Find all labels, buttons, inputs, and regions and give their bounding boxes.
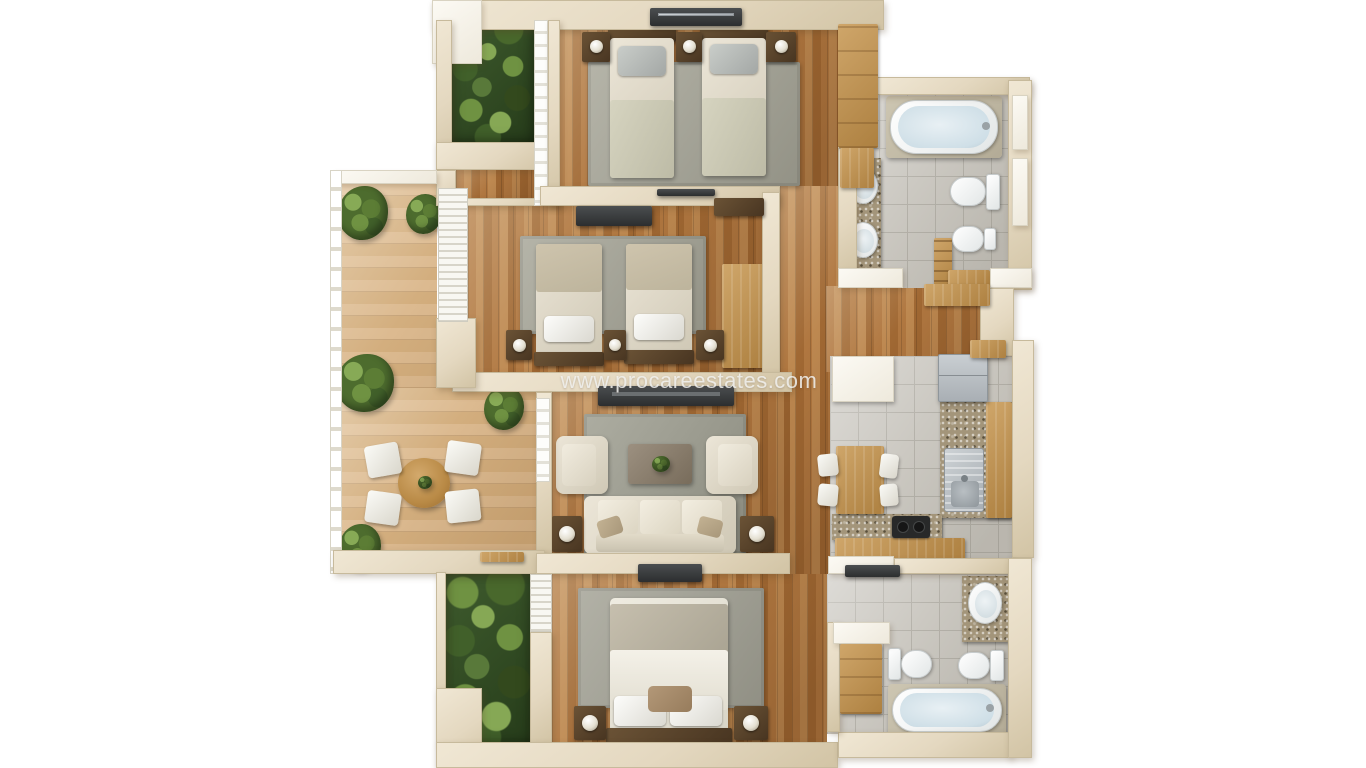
bed-pillow bbox=[710, 44, 758, 74]
sink-faucet bbox=[961, 475, 968, 482]
armchair bbox=[706, 436, 758, 494]
bed-blanket bbox=[702, 98, 766, 176]
cooktop bbox=[892, 516, 930, 538]
armchair bbox=[556, 436, 608, 494]
bathroom-bottom-sliding-door bbox=[845, 565, 900, 577]
bathroom-top-bottom-wall-left bbox=[838, 268, 903, 288]
table-lamp bbox=[582, 715, 598, 731]
bedroom-top-window bbox=[650, 8, 742, 26]
table-lamp bbox=[743, 715, 759, 731]
sofa-cushion bbox=[640, 500, 680, 534]
single-bed bbox=[608, 26, 676, 178]
wall-vent-slot bbox=[657, 189, 715, 196]
bathtub bbox=[888, 684, 1006, 736]
terrace-chair bbox=[444, 488, 481, 523]
bed-blanket bbox=[610, 100, 674, 178]
dining-chair bbox=[879, 483, 899, 506]
bathtub-basin bbox=[900, 693, 994, 727]
sofa-back bbox=[596, 534, 724, 552]
nightstand bbox=[676, 32, 702, 62]
bathroom-bottom-right-wall bbox=[1008, 558, 1032, 758]
bidet-bowl bbox=[952, 226, 984, 252]
coffee-table bbox=[628, 444, 692, 484]
toilet bbox=[950, 174, 1000, 210]
single-bed bbox=[624, 244, 694, 366]
bathtub-faucet bbox=[986, 704, 994, 712]
table-lamp bbox=[590, 40, 603, 53]
bathtub-basin bbox=[898, 106, 990, 148]
desk bbox=[722, 264, 766, 368]
bedroom-middle-tv-console bbox=[576, 206, 652, 226]
sink-basin bbox=[951, 481, 979, 507]
burner bbox=[913, 521, 925, 533]
bed-blanket bbox=[536, 244, 602, 292]
wardrobe bbox=[838, 24, 878, 148]
bed-headboard bbox=[534, 352, 604, 366]
toilet-tank bbox=[986, 174, 1000, 210]
bidet-base bbox=[984, 228, 996, 250]
terrace-railing bbox=[330, 170, 342, 574]
bed-blanket bbox=[610, 604, 728, 654]
refrigerator bbox=[938, 354, 988, 402]
bedroom-top-window-strip bbox=[534, 20, 548, 206]
sideboard bbox=[714, 198, 764, 216]
bathroom-top-right-recess-1 bbox=[1012, 95, 1028, 150]
dining-table bbox=[836, 446, 884, 514]
terrace-chair bbox=[364, 490, 402, 526]
watermark: www.procareestates.com bbox=[549, 368, 829, 394]
kitchen-upper-cabinets bbox=[832, 356, 894, 402]
master-louver-window bbox=[530, 574, 552, 632]
dining-chair bbox=[817, 483, 839, 507]
potted-plant bbox=[336, 354, 394, 412]
master-tv-console bbox=[638, 564, 702, 582]
bedroom-top-left-wall bbox=[548, 20, 560, 206]
potted-plant bbox=[338, 186, 388, 240]
bathtub-faucet bbox=[982, 122, 990, 130]
garden-top-bottom-wall bbox=[436, 142, 550, 170]
terrace-chair bbox=[444, 440, 482, 476]
kitchen-side-cabinet bbox=[986, 402, 1012, 518]
toilet-bowl bbox=[901, 650, 932, 678]
kitchen-right-wall bbox=[1012, 340, 1034, 558]
dresser bbox=[840, 148, 874, 188]
bottom-wall bbox=[436, 742, 838, 768]
table-lamp bbox=[559, 526, 575, 542]
window-sill bbox=[658, 13, 734, 16]
side-table bbox=[740, 516, 774, 552]
bidet-base bbox=[990, 650, 1004, 681]
dining-chair bbox=[879, 453, 900, 479]
washbasin bbox=[968, 582, 1002, 624]
bed-blanket bbox=[626, 244, 692, 290]
hallway-wood-slab bbox=[970, 340, 1006, 358]
table-lamp bbox=[775, 40, 788, 53]
round-table bbox=[398, 458, 450, 508]
bedroom-middle-louver-window bbox=[438, 188, 468, 322]
toilet-bowl bbox=[950, 177, 986, 206]
potted-plant bbox=[484, 386, 524, 430]
kitchen-sink bbox=[944, 448, 984, 512]
nightstand bbox=[604, 330, 626, 360]
fridge-divider bbox=[939, 375, 988, 376]
bathroom-bottom-top-wall bbox=[894, 558, 1012, 574]
bed-pillow bbox=[634, 314, 684, 340]
bidet bbox=[952, 224, 996, 255]
hall-console bbox=[924, 284, 990, 306]
master-left-wall bbox=[530, 632, 552, 744]
table-lamp bbox=[513, 339, 526, 352]
dining-chair bbox=[817, 453, 839, 477]
table-lamp bbox=[609, 339, 621, 351]
terrace-chair bbox=[363, 441, 402, 478]
bedroom-middle-right-wall bbox=[762, 192, 780, 380]
sofa bbox=[584, 496, 736, 554]
basin-bowl bbox=[854, 229, 874, 253]
terrace-top-wall bbox=[333, 170, 437, 184]
nightstand bbox=[696, 330, 724, 360]
table-lamp bbox=[749, 526, 765, 542]
nightstand bbox=[506, 330, 532, 360]
side-table bbox=[552, 516, 582, 552]
armchair-seat bbox=[718, 444, 752, 486]
bed-pillow bbox=[544, 316, 594, 342]
living-room-terrace-door bbox=[536, 398, 550, 482]
bidet-bowl bbox=[958, 652, 990, 679]
single-bed bbox=[700, 26, 768, 176]
bed-cushion bbox=[648, 686, 692, 712]
nightstand bbox=[766, 32, 796, 62]
bathroom-wardrobe bbox=[840, 644, 882, 714]
single-bed bbox=[534, 244, 604, 368]
terrace-doormat bbox=[480, 552, 524, 562]
toilet-tank bbox=[888, 648, 901, 680]
double-bed bbox=[606, 598, 732, 746]
bathroom-top-right-recess-2 bbox=[1012, 158, 1028, 226]
nightstand bbox=[582, 32, 610, 62]
floor-plan: www.procareestates.com bbox=[0, 0, 1366, 768]
table-lamp bbox=[704, 339, 717, 352]
bathtub bbox=[886, 96, 1002, 158]
toilet bbox=[888, 648, 932, 680]
bidet bbox=[958, 650, 1004, 681]
burner bbox=[897, 521, 909, 533]
bathroom-bottom-inner-wall bbox=[833, 622, 890, 644]
flower-arrangement bbox=[652, 456, 670, 472]
nightstand bbox=[574, 706, 606, 740]
terrace-wall-block bbox=[436, 318, 476, 388]
table-plant bbox=[418, 476, 432, 489]
bathroom-bottom-bottom-wall bbox=[838, 732, 1012, 758]
bed-pillow bbox=[618, 46, 666, 76]
table-lamp bbox=[683, 40, 696, 53]
nightstand bbox=[734, 706, 768, 740]
basin-bowl bbox=[975, 590, 997, 618]
armchair-seat bbox=[562, 444, 596, 486]
bed-headboard bbox=[624, 350, 694, 364]
bathroom-top-bottom-wall-right bbox=[990, 268, 1032, 288]
